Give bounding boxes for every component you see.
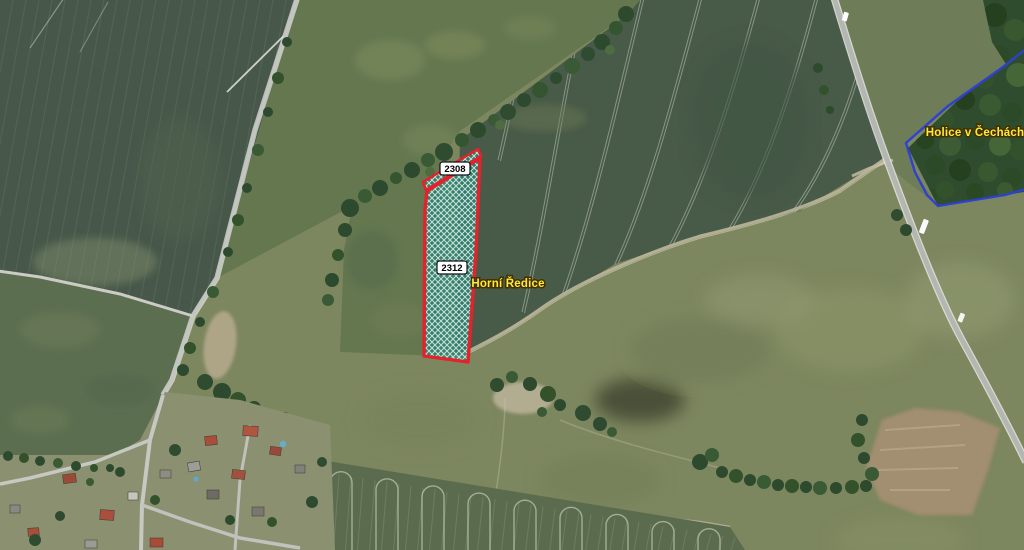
- parcel-2312-number: 2312: [441, 263, 462, 274]
- aerial-imagery-canvas[interactable]: 2308 2312 Horní Ředice Holice v Čechách: [0, 0, 1024, 550]
- place-label-holice-v-cechach: Holice v Čechách: [926, 126, 1024, 139]
- parcel-label-2308: 2308: [440, 162, 470, 175]
- parcel-2312[interactable]: [424, 158, 480, 362]
- parcel-label-2312: 2312: [437, 261, 467, 274]
- swimming-pool: [280, 441, 286, 447]
- satellite-map-viewport[interactable]: 2308 2312 Horní Ředice Holice v Čechách: [0, 0, 1024, 550]
- parcel-2308-number: 2308: [444, 164, 465, 175]
- swimming-pool: [193, 476, 198, 481]
- place-label-horni-redice: Horní Ředice: [471, 277, 544, 290]
